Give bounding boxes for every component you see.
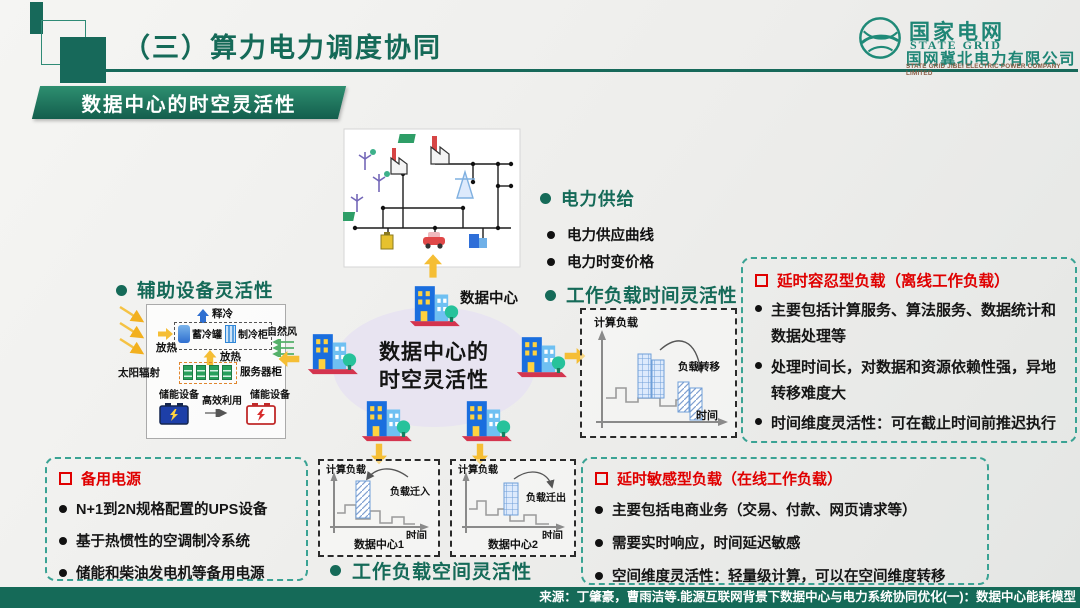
page-title: （三）算力电力调度协同 [123,26,442,65]
datacenter-building-icon [408,282,460,327]
bullet-icon [540,193,551,204]
list-item: 基于热惯性的空调制冷系统 [59,530,294,551]
svg-text:时间: 时间 [696,408,718,422]
list-item: 电力时变价格 [547,251,654,272]
power-grid-illustration [343,128,521,268]
delay-tolerant-box: 延时容忍型负载（离线工作负载） 主要包括计算服务、算法服务、数据统计和数据处理等… [741,257,1077,443]
datacenter-building-icon [460,397,512,442]
server-rack-group [179,362,237,384]
space-chart-box-1: 计算负载 负载迁入 时间 数据中心1 [318,459,440,557]
release-cold-label: 释冷 [212,309,233,321]
arrow-up-icon [424,252,442,280]
list-item: 时间维度灵活性：可在截止时间前推迟执行 [755,411,1063,437]
natural-wind-label: 自然风 [267,327,297,338]
bullet-icon [545,290,556,301]
cold-cabinet-label: 制冷柜 [238,330,268,341]
cold-cabinet-icon [225,325,236,343]
bullet-icon [116,285,127,296]
heat-arrow-icon [158,328,173,340]
bullet-icon [755,418,762,425]
bullet-icon [547,258,555,266]
time-flex-chart: 计算负载 负载转移 时间 [582,310,735,436]
space-chart-2-name: 数据中心2 [452,536,574,552]
bullet-icon [595,539,603,547]
section-banner: 数据中心的时空灵活性 [32,86,346,119]
bullet-icon [59,505,67,513]
cold-release-arrow-icon [197,309,209,323]
datacenter-building-icon [360,397,412,442]
square-bullet-icon [755,274,768,287]
bullet-icon [595,506,603,514]
cold-tank-icon [178,325,190,343]
delay-sensitive-title: 延时敏感型负载（在线工作负载） [595,468,975,489]
bullet-icon [755,305,762,312]
center-ellipse-text: 数据中心的 时空灵活性 [379,339,489,396]
logo-company-en: STATE GRID JIBEI ELECTRIC POWER COMPANY … [906,63,1080,77]
storage-right-label: 储能设备 [250,390,290,401]
svg-text:计算负载: 计算负载 [594,315,638,329]
space-chart-box-2: 计算负载 负载迁出 时间 数据中心2 [450,459,576,557]
server-rack-icon [222,365,232,380]
source-text: 来源：丁肇豪，曹雨洁等.能源互联网背景下数据中心与电力系统协同优化(一)：数据中… [539,587,1076,608]
space-chart-1: 计算负载 负载迁入 时间 [320,461,438,539]
slide-root: （三）算力电力调度协同 国家电网 STATE GRID 国网冀北电力有限公司 S… [0,0,1080,608]
list-item: 电力供应曲线 [547,224,654,245]
space-chart-2: 计算负载 负载迁出 时间 [452,461,574,539]
bullet-icon [547,231,555,239]
efficient-use-arrow-icon [205,409,231,417]
list-item: 空间维度灵活性：轻量级计算，可以在空间维度转移 [595,565,975,586]
server-rack-icon [196,365,206,380]
svg-text:负载迁入: 负载迁入 [390,485,430,498]
battery-load-icon [381,232,393,249]
title-filled-square [60,37,106,83]
square-bullet-icon [595,472,608,485]
list-item: 储能和柴油发电机等备用电源 [59,562,294,583]
list-item: 主要包括电商业务（交易、付款、网页请求等） [595,499,975,520]
datacenter-building-icon [306,330,358,375]
list-item: 需要实时响应，时间延迟敏感 [595,532,975,553]
bullet-icon [755,362,762,369]
svg-text:负载转移: 负载转移 [678,360,720,373]
svg-text:计算负载: 计算负载 [458,463,498,476]
backup-power-box: 备用电源 N+1到2N规格配置的UPS设备 基于热惯性的空调制冷系统 储能和柴油… [45,457,308,581]
delay-tolerant-title: 延时容忍型负载（离线工作负载） [755,269,1063,291]
state-grid-globe-icon [857,15,903,61]
space-flex-heading: 工作负载空间灵活性 [330,557,532,584]
heat-release-left-label: 放热 [156,343,177,355]
sun-rays-icon [118,305,154,359]
square-bullet-icon [59,472,72,485]
aux-heading: 辅助设备灵活性 [116,277,274,303]
svg-text:计算负载: 计算负载 [326,463,366,476]
datacenter-label: 数据中心 [460,287,518,308]
arrow-left-icon [276,351,302,367]
datacenter-building-icon [515,333,567,378]
bullet-icon [595,572,603,580]
backup-power-title: 备用电源 [59,468,294,489]
list-item: 处理时间长，对数据和资源依赖性强，异地转移难度大 [755,355,1063,408]
list-item: 主要包括计算服务、算法服务、数据统计和数据处理等 [755,298,1063,351]
time-flex-chart-box: 计算负载 负载转移 时间 [580,308,737,438]
server-rack-icon [209,365,219,380]
battery-red-icon [246,402,276,426]
server-rack-icon [183,365,193,380]
list-item: N+1到2N规格配置的UPS设备 [59,498,294,519]
space-chart-1-name: 数据中心1 [320,536,438,552]
svg-text:负载迁出: 负载迁出 [526,491,566,504]
server-cabinet-label: 服务器柜 [240,367,282,379]
storage-left-label: 储能设备 [159,390,199,401]
power-supply-heading: 电力供给 [540,186,635,211]
bullet-icon [59,569,67,577]
solar-radiation-label: 太阳辐射 [118,368,160,380]
cold-tank-label: 蓄冷罐 [192,330,222,341]
bullet-icon [330,565,341,576]
section-banner-label: 数据中心的时空灵活性 [36,86,342,119]
time-flex-heading: 工作负载时间灵活性 [545,282,737,308]
efficient-use-label: 高效利用 [202,396,242,407]
bullet-icon [59,537,67,545]
delay-sensitive-box: 延时敏感型负载（在线工作负载） 主要包括电商业务（交易、付款、网页请求等） 需要… [581,457,989,585]
battery-blue-icon [159,402,189,426]
